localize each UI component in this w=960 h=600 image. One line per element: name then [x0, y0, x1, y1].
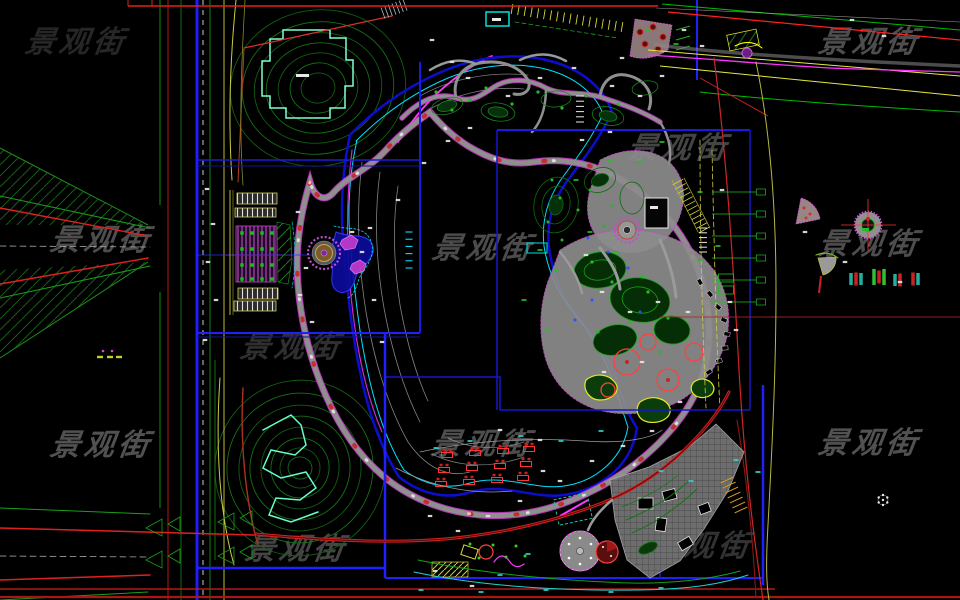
label-mark	[638, 95, 643, 97]
label-mark-cyan	[468, 440, 473, 442]
label-mark	[498, 429, 503, 431]
shrub-dot-blue	[627, 267, 630, 270]
label-mark	[538, 439, 543, 441]
label-mark-cyan	[659, 587, 664, 589]
tree-dot	[484, 86, 487, 89]
shrub-dot-blue	[574, 319, 577, 322]
watermark-text: 景观街	[48, 428, 157, 462]
picnic-seat	[471, 476, 474, 479]
picnic-seat	[499, 445, 502, 448]
label-mark	[296, 211, 301, 213]
plaza-dot	[590, 543, 593, 546]
pavilion-building	[645, 198, 668, 228]
small-plaza-center	[624, 227, 631, 234]
picnic-seat	[443, 449, 446, 452]
legend-swatch-red	[898, 274, 902, 287]
legend-swatch-red	[877, 271, 881, 284]
label-mark	[492, 18, 501, 21]
label-mark	[580, 139, 585, 141]
legend-swatch-teal	[849, 273, 853, 285]
label-mark-green	[698, 259, 703, 261]
label-mark	[456, 530, 461, 532]
plaza-dot	[590, 557, 593, 560]
label-mark	[470, 585, 475, 587]
label-mark	[466, 77, 471, 79]
label-mark-green	[716, 245, 721, 247]
picnic-seat	[528, 458, 531, 461]
label-mark	[360, 251, 365, 253]
label-mark	[610, 85, 615, 87]
legend-swatch-teal	[916, 273, 920, 285]
label-mark	[620, 57, 625, 59]
picnic-seat	[505, 445, 508, 448]
tree-square	[250, 263, 254, 267]
tree-square	[260, 231, 264, 235]
tree-dot	[658, 350, 661, 353]
label-mark	[450, 61, 455, 63]
north-symbol	[886, 496, 888, 498]
label-mark-green	[614, 251, 619, 253]
play-dot	[515, 545, 518, 548]
picnic-seat	[468, 462, 471, 465]
north-symbol	[882, 499, 884, 501]
flower-symbol	[650, 24, 656, 30]
tree-dot	[590, 260, 593, 263]
label-mark-cyan	[559, 440, 564, 442]
play-dot	[478, 557, 481, 560]
label-mark	[433, 570, 438, 572]
legend-swatch-green	[872, 269, 876, 285]
label-mark-cyan	[734, 459, 739, 461]
label-mark-green	[588, 231, 593, 233]
tree-square	[270, 263, 274, 267]
tree-dot	[646, 290, 649, 293]
label-mark-green	[698, 191, 703, 193]
shrub-dot-blue	[607, 251, 610, 254]
label-mark	[728, 301, 733, 303]
tree-square	[270, 277, 274, 281]
label-mark-green	[554, 269, 559, 271]
tree-dot	[559, 197, 562, 200]
north-symbol	[878, 501, 880, 503]
label-mark	[304, 267, 309, 269]
tree-square	[260, 263, 264, 267]
legend-swatch-red	[854, 273, 858, 286]
roundabout-dot	[866, 217, 870, 221]
picnic-seat	[474, 462, 477, 465]
watermark-text: 景观街	[23, 25, 132, 59]
flower-symbol	[660, 34, 666, 40]
parking-row	[238, 288, 278, 299]
shrub-bed	[691, 379, 714, 397]
plaza-dot	[610, 555, 612, 557]
label-mark	[298, 294, 303, 296]
tree-square	[240, 247, 244, 251]
label-mark-cyan	[479, 591, 484, 593]
label-mark-green	[546, 329, 551, 331]
label-mark-yellow	[97, 356, 103, 358]
label-mark-green	[640, 275, 645, 277]
label-mark-cyan	[756, 471, 761, 473]
label-mark	[898, 281, 903, 283]
flower-symbol	[642, 41, 648, 47]
tree-dot	[610, 280, 613, 283]
picnic-seat	[519, 472, 522, 475]
label-mark	[486, 515, 491, 517]
label-mark-cyan	[689, 480, 694, 482]
fan-flower-dot	[803, 207, 806, 210]
model-space-background	[0, 0, 960, 600]
picnic-seat	[502, 460, 505, 463]
picnic-seat	[449, 449, 452, 452]
label-mark-cyan	[519, 435, 524, 437]
label-mark-cyan	[434, 447, 439, 449]
plaza-dot	[579, 563, 582, 566]
label-mark	[296, 74, 309, 77]
picnic-seat	[525, 443, 528, 446]
tree-dot	[611, 205, 614, 208]
label-mark	[678, 401, 683, 403]
label-mark	[380, 341, 385, 343]
label-mark	[422, 162, 427, 164]
tree-square	[250, 231, 254, 235]
tree-square	[250, 277, 254, 281]
label-mark	[682, 29, 687, 31]
label-mark	[600, 291, 605, 293]
watermark-text: 景观街	[429, 427, 538, 461]
tree-dot	[560, 106, 563, 109]
cad-drawing-canvas[interactable]: 景观街景观街景观街景观街景观街景观街景观街景观街景观街景观街景观街景观街	[0, 0, 960, 600]
label-dot-magenta	[102, 350, 105, 353]
label-mark	[882, 35, 887, 37]
tree-dot	[561, 239, 564, 242]
label-mark	[211, 223, 216, 225]
picnic-seat	[493, 474, 496, 477]
shrub-dot-blue	[639, 311, 642, 314]
label-mark	[628, 311, 633, 313]
cad-viewport: 景观街景观街景观街景观街景观街景观街景观街景观街景观街景观街景观街景观街	[0, 0, 960, 600]
label-mark-green	[608, 159, 613, 161]
label-mark	[558, 480, 563, 482]
label-mark	[428, 515, 433, 517]
shrub-dot-blue	[591, 299, 594, 302]
legend-swatch-teal	[859, 273, 863, 285]
tree-dot	[468, 98, 471, 101]
tree-square	[260, 277, 264, 281]
legend-swatch-teal	[893, 274, 897, 286]
planting-strip	[277, 222, 292, 284]
tree-dot	[603, 225, 606, 228]
parking-row	[237, 193, 277, 204]
label-mark	[203, 339, 208, 341]
legend-swatch-green	[882, 269, 886, 285]
plaza-dot	[602, 546, 604, 548]
tree-dot	[510, 102, 513, 105]
picnic-seat	[465, 476, 468, 479]
fan-flower-dot	[805, 217, 808, 220]
tree-square	[260, 247, 264, 251]
tree-square	[240, 263, 244, 267]
play-dot	[469, 543, 472, 546]
label-mark	[700, 45, 705, 47]
flower-symbol	[637, 29, 643, 35]
plaza-center	[577, 548, 584, 555]
tree-square	[240, 277, 244, 281]
picnic-seat	[437, 478, 440, 481]
picnic-seat	[446, 464, 449, 467]
label-mark	[430, 39, 435, 41]
label-mark-cyan	[544, 589, 549, 591]
label-mark	[650, 206, 658, 209]
label-mark	[720, 189, 725, 191]
watermark-text: 景观街	[430, 231, 539, 265]
watermark-text: 景观街	[48, 223, 157, 257]
tree-dot	[596, 330, 599, 333]
label-mark	[843, 261, 848, 263]
label-mark-yellow	[116, 356, 122, 358]
tree-dot	[628, 320, 631, 323]
legend-swatch-red	[911, 273, 915, 286]
label-mark	[541, 470, 546, 472]
planter-dot	[666, 378, 670, 382]
tree-dot	[589, 189, 592, 192]
picnic-seat	[496, 460, 499, 463]
north-symbol	[882, 504, 884, 506]
tree-square	[250, 247, 254, 251]
label-mark	[686, 311, 691, 313]
label-mark-green	[538, 249, 543, 251]
watermark-text: 景观街	[816, 426, 925, 460]
picnic-seat	[531, 443, 534, 446]
plaza-dot	[568, 557, 571, 560]
watermark-text: 景观街	[816, 25, 925, 59]
tree-square	[240, 231, 244, 235]
play-dot	[492, 544, 495, 547]
picnic-seat	[477, 447, 480, 450]
fan-flower-dot	[809, 213, 812, 216]
label-dot-magenta	[111, 350, 114, 353]
label-mark	[506, 95, 511, 97]
label-mark-cyan	[526, 553, 531, 555]
label-mark	[734, 329, 739, 331]
label-mark	[205, 188, 210, 190]
picnic-seat	[440, 464, 443, 467]
tree-square	[270, 231, 274, 235]
planter-dot	[625, 360, 629, 364]
label-mark	[584, 254, 589, 256]
label-mark-cyan	[659, 470, 664, 472]
play-dot	[505, 556, 508, 559]
label-mark-cyan	[498, 574, 503, 576]
label-mark	[310, 321, 315, 323]
label-mark-green	[674, 43, 679, 45]
label-mark-green	[638, 161, 643, 163]
label-mark	[656, 301, 661, 303]
label-mark	[350, 231, 355, 233]
label-mark	[368, 227, 373, 229]
picnic-seat	[471, 447, 474, 450]
label-mark-green	[522, 299, 527, 301]
label-mark	[621, 445, 626, 447]
label-mark	[538, 77, 543, 79]
ne-entry-node	[742, 48, 752, 58]
label-mark	[572, 67, 577, 69]
watermark-text: 景观街	[238, 330, 347, 364]
picnic-seat	[443, 478, 446, 481]
tree-dot	[536, 90, 539, 93]
label-mark	[640, 361, 645, 363]
roundabout-mark	[862, 228, 869, 231]
tree-dot	[577, 209, 580, 212]
label-mark-green	[646, 29, 651, 31]
north-symbol	[878, 496, 880, 498]
label-mark-cyan	[609, 591, 614, 593]
label-mark-yellow	[97, 356, 122, 358]
tree-dot	[551, 179, 554, 182]
label-mark	[518, 500, 523, 502]
label-mark	[608, 131, 613, 133]
label-mark-cyan	[419, 589, 424, 591]
label-mark	[660, 75, 665, 77]
colonnade-post	[722, 346, 728, 351]
entry-plaza-center	[321, 250, 327, 256]
label-mark	[650, 430, 655, 432]
shrub-dot-blue	[587, 237, 590, 240]
tree-square	[270, 247, 274, 251]
label-mark	[372, 299, 377, 301]
label-mark	[602, 371, 607, 373]
tree-dot	[450, 108, 453, 111]
label-mark	[396, 199, 401, 201]
tree-dot	[434, 90, 437, 93]
label-mark	[214, 299, 219, 301]
plaza-building	[638, 498, 653, 509]
tree-dot	[616, 102, 619, 105]
label-mark	[590, 460, 595, 462]
tree-dot	[547, 221, 550, 224]
label-mark-green	[660, 141, 665, 143]
label-mark-cyan	[599, 430, 604, 432]
label-mark	[468, 127, 473, 129]
label-mark	[850, 19, 855, 21]
colonnade-post	[724, 332, 731, 337]
label-mark	[803, 231, 808, 233]
plaza-dot	[579, 537, 582, 540]
north-symbol	[882, 494, 884, 496]
tree-dot	[584, 94, 587, 97]
parking-row	[234, 301, 276, 311]
parking-row	[235, 208, 276, 217]
picnic-seat	[525, 472, 528, 475]
label-mark	[206, 261, 211, 263]
label-mark-green	[574, 179, 579, 181]
picnic-seat	[522, 458, 525, 461]
north-symbol	[886, 501, 888, 503]
label-mark	[446, 140, 451, 142]
picnic-seat	[499, 474, 502, 477]
label-mark-yellow	[107, 356, 113, 358]
plaza-dot	[568, 543, 571, 546]
